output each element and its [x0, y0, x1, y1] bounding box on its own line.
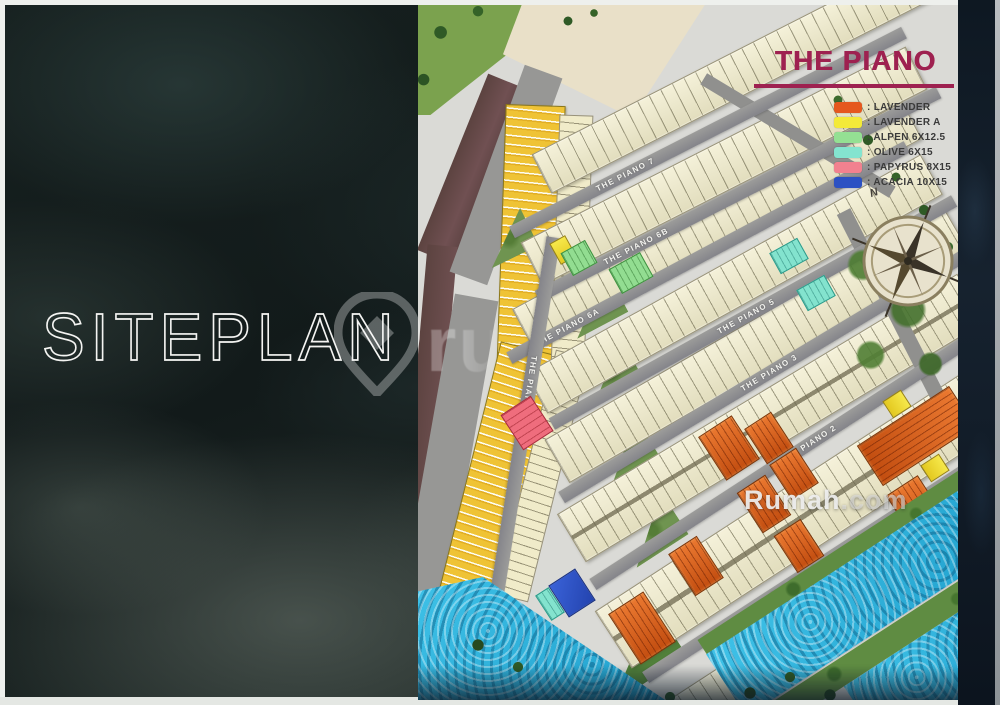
legend-swatch-lavender-a	[834, 117, 862, 128]
siteplan-image: SITEPLAN ru	[0, 0, 1000, 705]
brand-watermark-map: Rumah.com	[744, 485, 908, 516]
brand-watermark-tld: .com	[841, 485, 908, 515]
right-border-strip	[958, 0, 1000, 705]
right-edge-highlight	[995, 0, 1000, 705]
map-pin-icon	[334, 292, 420, 396]
brand-watermark-letters: ru	[426, 305, 508, 383]
legend-swatch-acacia	[834, 177, 862, 188]
legend-row: ALPEN 6X12.5	[834, 131, 945, 143]
legend-row: LAVENDER A	[834, 116, 941, 128]
plan-title-underline	[754, 84, 954, 88]
legend-swatch-papyrus	[834, 162, 862, 173]
legend-row: OLIVE 6X15	[834, 146, 933, 158]
legend-label: PAPYRUS 8X15	[867, 162, 951, 173]
plan-title: THE PIANO	[748, 45, 962, 77]
brand-watermark-left: ru	[334, 292, 508, 396]
legend-row: ACACIA 10X15	[834, 176, 947, 188]
legend-row: LAVENDER	[834, 101, 930, 113]
legend-label: ALPEN 6X12.5	[867, 132, 945, 143]
legend-swatch-alpen	[834, 132, 862, 143]
legend-row: PAPYRUS 8X15	[834, 161, 951, 173]
legend-swatch-lavender	[834, 102, 862, 113]
legend-label: LAVENDER	[867, 102, 930, 113]
brand-watermark-name: Rumah	[744, 485, 841, 515]
legend-label: OLIVE 6X15	[867, 147, 933, 158]
legend-swatch-olive	[834, 147, 862, 158]
legend-label: LAVENDER A	[867, 117, 941, 128]
frame-left	[0, 0, 5, 705]
bottom-shadow	[418, 665, 962, 700]
